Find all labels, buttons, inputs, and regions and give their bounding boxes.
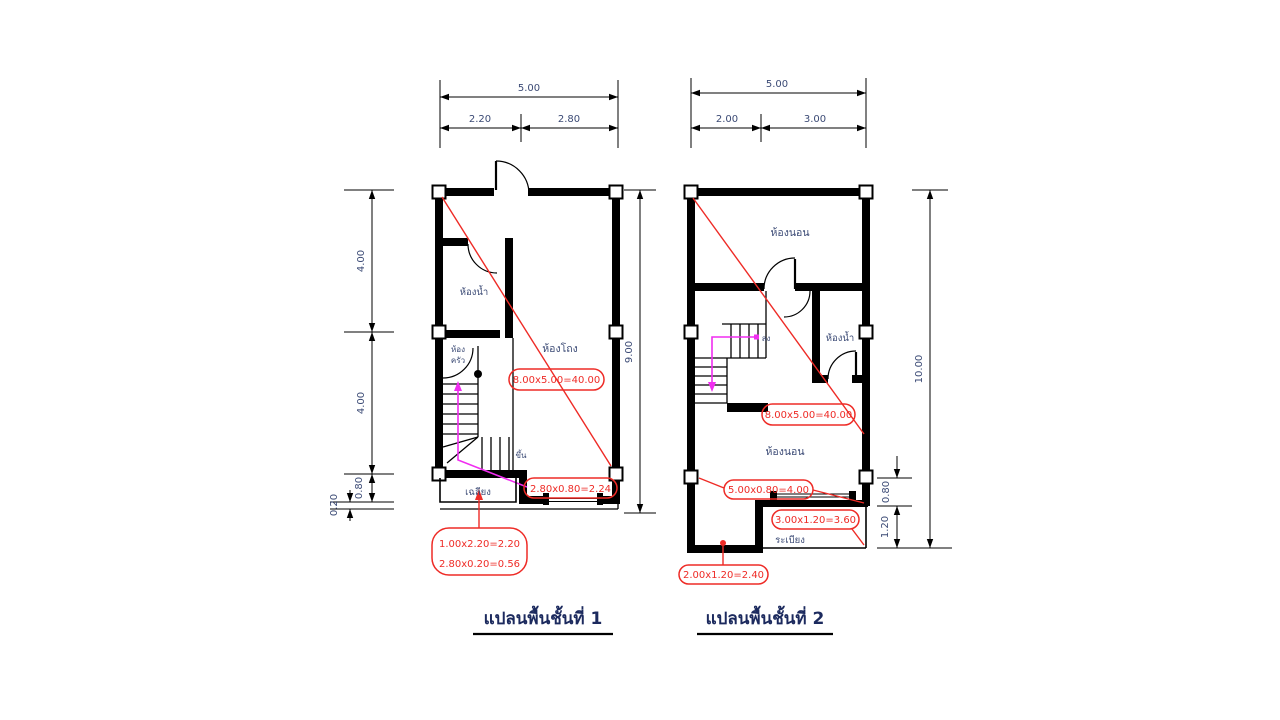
dim-side-tiny: 0.20 <box>329 494 340 516</box>
column <box>433 186 446 199</box>
stair-path-down-arrow <box>708 382 716 392</box>
dim-side-upper: 4.00 <box>356 250 367 272</box>
column <box>610 326 623 339</box>
column <box>433 468 446 481</box>
room-label-bathroom: ห้องน้ำ <box>826 331 854 344</box>
porch-area-label-1: 1.00x2.20=2.20 <box>439 539 520 550</box>
room-label-balcony: ระเบียง <box>775 534 805 546</box>
plan2-bedroom-door <box>764 258 795 289</box>
plan2-corridor-door <box>784 291 810 317</box>
column <box>433 326 446 339</box>
column <box>685 186 698 199</box>
room-label-hall: ห้องโถง <box>542 342 577 355</box>
area-label: 8.00x5.00=40.00 <box>765 410 852 421</box>
dim-side-tiny: 1.20 <box>880 516 891 538</box>
porch-area-label-2: 2.80x0.20=0.56 <box>439 559 520 570</box>
plan1-top-dimensions: 5.00 2.20 2.80 <box>440 80 618 148</box>
plan2-red-annotations: 8.00x5.00=40.00 5.00x0.80=4.00 3.00x1.20… <box>679 198 864 584</box>
plan2-title-group: แปลนพื้นชั้นที่ 2 <box>697 605 833 634</box>
plan1: 8.00x5.00=40.00 2.80x0.80=2.24 1.00x2.20… <box>329 80 656 634</box>
area-label: 8.00x5.00=40.00 <box>513 375 600 386</box>
plan2-right-dimensions: 10.00 0.80 1.20 <box>877 190 952 548</box>
dim-side-small: 0.80 <box>354 477 365 499</box>
plan2-stairs <box>695 291 766 403</box>
dim-height-total: 10.00 <box>914 355 925 384</box>
dim-top-left: 2.00 <box>716 114 738 125</box>
column <box>685 471 698 484</box>
plan1-bathroom-door <box>468 244 497 273</box>
plan2-bathroom-door <box>828 351 856 379</box>
column <box>860 471 873 484</box>
plan1-room-labels: ห้องน้ำ ห้องโถง ห้อง ครัว ขึ้น เฉลียง <box>451 285 578 498</box>
plan1-title-group: แปลนพื้นชั้นที่ 1 <box>473 605 613 634</box>
strip-label: 5.00x0.80=4.00 <box>728 485 809 496</box>
dim-top-total: 5.00 <box>766 79 788 90</box>
plan2-top-dimensions: 5.00 2.00 3.00 <box>691 78 866 148</box>
balcony-area-label: 3.00x1.20=3.60 <box>775 515 856 526</box>
stair-path-start <box>754 335 759 340</box>
column <box>685 326 698 339</box>
stair-newel-post <box>474 370 482 378</box>
dim-side-small: 0.80 <box>881 481 892 503</box>
column <box>610 186 623 199</box>
column <box>860 326 873 339</box>
plan1-entry-door <box>496 161 529 194</box>
dim-top-left: 2.20 <box>469 114 491 125</box>
stair-direction-label: ขึ้น <box>516 449 527 460</box>
floor-plan-canvas: 8.00x5.00=40.00 2.80x0.80=2.24 1.00x2.20… <box>0 0 1280 720</box>
floor-plan-drawing: 8.00x5.00=40.00 2.80x0.80=2.24 1.00x2.20… <box>0 0 1280 720</box>
column <box>860 186 873 199</box>
dim-side-lower: 4.00 <box>356 392 367 414</box>
stair-direction-label: ลง <box>762 334 771 343</box>
stair-path-up-arrow <box>454 381 462 391</box>
room-label-bedroom-upper: ห้องนอน <box>770 227 809 239</box>
room-label-bedroom-lower: ห้องนอน <box>765 446 804 458</box>
strip-label: 2.80x0.80=2.24 <box>530 484 611 495</box>
plan2: ลง 8.00x5.00=40.00 5.00x0.80=4.00 3.00x1… <box>679 78 952 634</box>
plan1-left-dimensions: 4.00 4.00 0.80 0.20 <box>329 190 394 521</box>
room-label-porch: เฉลียง <box>465 486 491 498</box>
room-label-small-1: ห้อง <box>451 345 465 354</box>
dim-top-right: 2.80 <box>558 114 580 125</box>
dim-top-total: 5.00 <box>518 83 540 94</box>
plan2-title: แปลนพื้นชั้นที่ 2 <box>706 605 825 629</box>
plan2-stair-path: ลง <box>708 334 770 392</box>
plan1-title: แปลนพื้นชั้นที่ 1 <box>484 605 603 629</box>
dim-height-total: 9.00 <box>624 341 635 363</box>
dim-top-right: 3.00 <box>804 114 826 125</box>
room-label-small-2: ครัว <box>451 356 465 365</box>
nook-leader-dot <box>720 540 726 546</box>
plan1-right-dimension: 9.00 <box>624 190 656 513</box>
plan2-room-labels: ห้องนอน ห้องน้ำ ห้องนอน ระเบียง <box>765 227 854 546</box>
room-label-bathroom: ห้องน้ำ <box>460 285 488 298</box>
nook-area-label: 2.00x1.20=2.40 <box>683 570 764 581</box>
